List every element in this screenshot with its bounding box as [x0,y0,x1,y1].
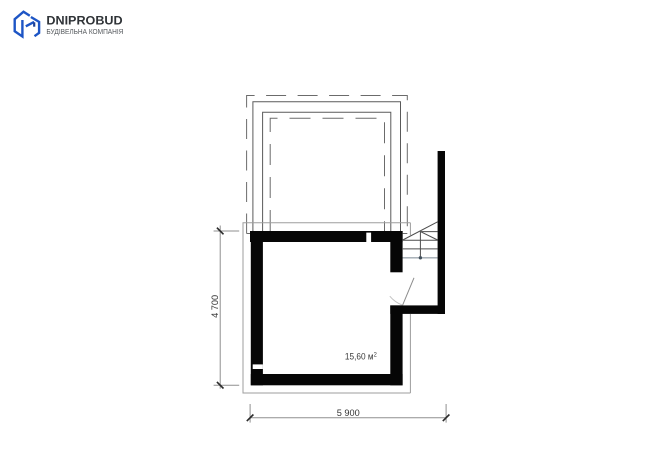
svg-text:БУДІВЕЛЬНА КОМПАНІЯ: БУДІВЕЛЬНА КОМПАНІЯ [46,27,123,36]
svg-text:15,60 м2: 15,60 м2 [345,351,377,362]
svg-text:5 900: 5 900 [337,408,360,418]
svg-text:DNIPROBUD: DNIPROBUD [46,14,122,28]
svg-text:4 700: 4 700 [210,295,220,318]
